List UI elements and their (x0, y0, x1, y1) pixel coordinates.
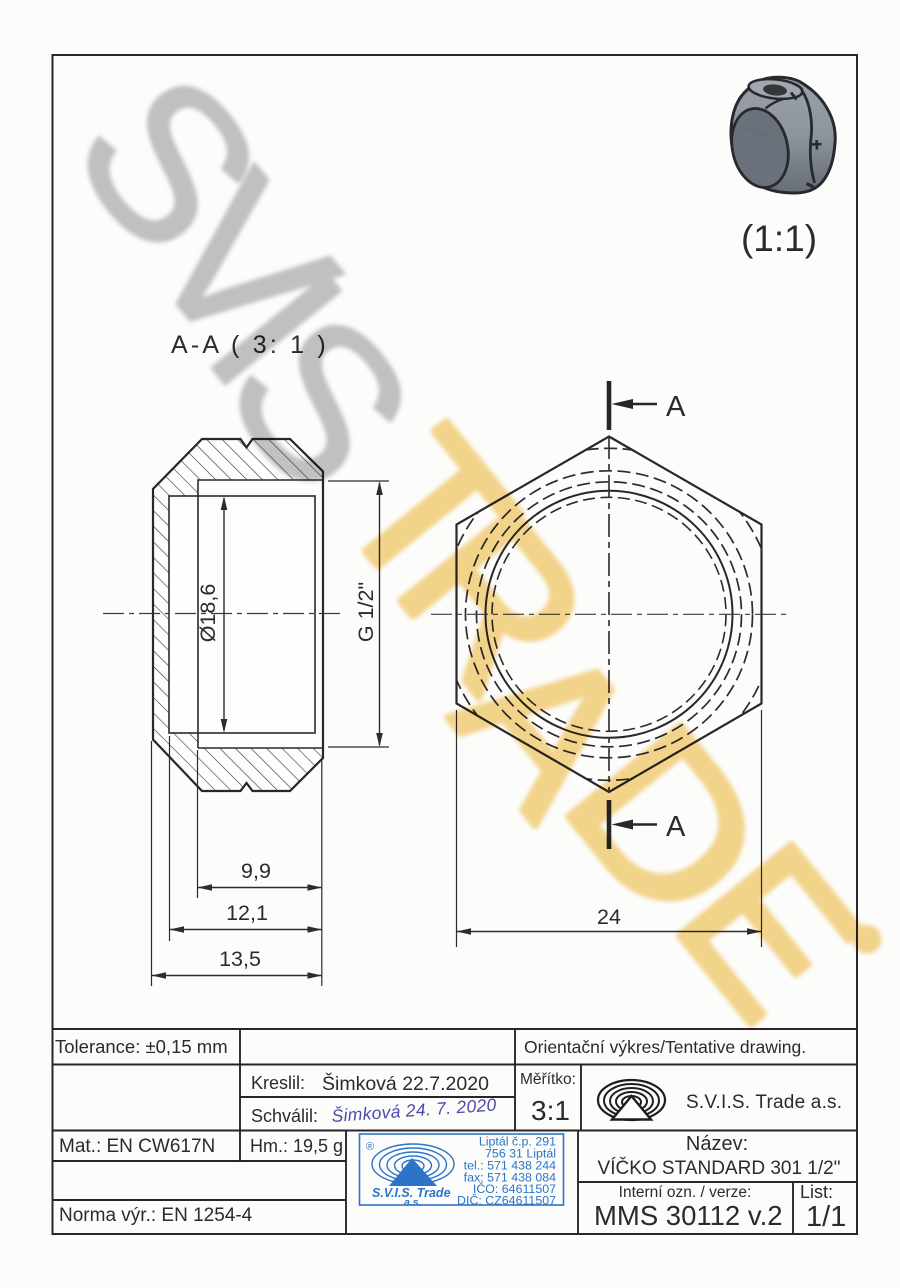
svg-text:S.V.I.S. Trade a.s.: S.V.I.S. Trade a.s. (686, 1092, 842, 1113)
svg-text:12,1: 12,1 (226, 901, 268, 925)
svg-text:A: A (666, 391, 686, 423)
svg-text:Měřítko:: Měřítko: (520, 1071, 576, 1088)
svg-text:Ø18,6: Ø18,6 (196, 584, 220, 643)
svg-text:9,9: 9,9 (241, 859, 271, 883)
svg-text:Tolerance: ±0,15 mm: Tolerance: ±0,15 mm (55, 1036, 228, 1057)
svg-text:DIČ: CZ64611507: DIČ: CZ64611507 (457, 1193, 556, 1208)
svg-text:Název:: Název: (686, 1133, 748, 1155)
svg-text:Schválil:: Schválil: (251, 1106, 318, 1126)
svg-text:VÍČKO STANDARD 301 1/2": VÍČKO STANDARD 301 1/2" (598, 1157, 841, 1179)
svg-text:3:1: 3:1 (531, 1095, 570, 1126)
svg-text:Mat.: EN CW617N: Mat.: EN CW617N (59, 1136, 215, 1157)
svg-text:Kreslil:: Kreslil: (251, 1073, 305, 1093)
svg-text:a.s.: a.s. (404, 1197, 422, 1209)
svg-text:Norma výr.: EN 1254-4: Norma výr.: EN 1254-4 (59, 1205, 253, 1226)
svg-text:List:: List: (800, 1182, 833, 1202)
svg-text:Šimková 22.7.2020: Šimková 22.7.2020 (322, 1072, 489, 1095)
svg-text:1/1: 1/1 (806, 1201, 846, 1233)
svg-text:13,5: 13,5 (219, 947, 261, 971)
svg-text:(1:1): (1:1) (741, 218, 817, 259)
svg-text:Hm.: 19,5 g: Hm.: 19,5 g (250, 1136, 343, 1156)
svg-text:Interní ozn. / verze:: Interní ozn. / verze: (619, 1184, 752, 1201)
svg-text:Orientační výkres/Tentative dr: Orientační výkres/Tentative drawing. (524, 1037, 806, 1057)
svg-text:MMS 30112 v.2: MMS 30112 v.2 (594, 1200, 783, 1231)
svg-text:®: ® (366, 1141, 374, 1153)
